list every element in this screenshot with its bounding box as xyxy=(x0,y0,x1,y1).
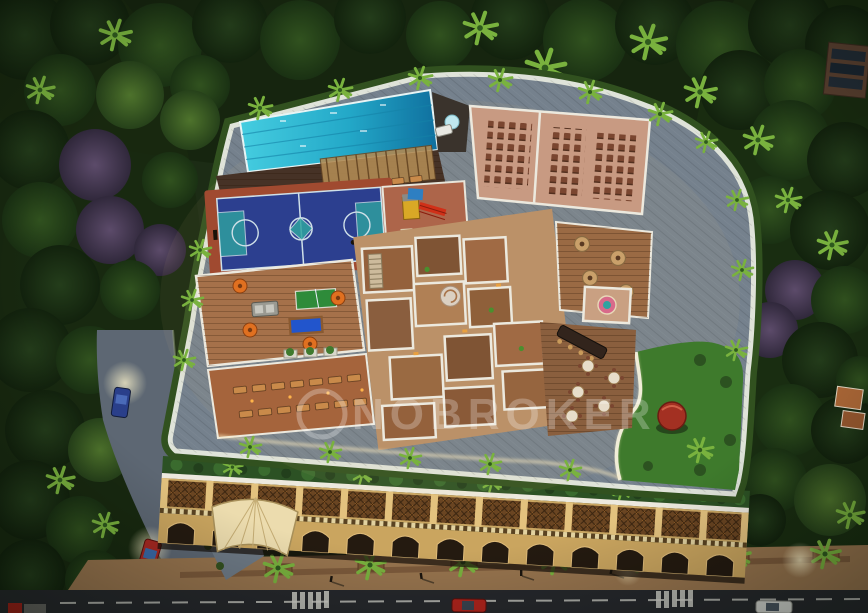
aerial-render: NOBROKER xyxy=(0,0,868,613)
watermark: NOBROKER xyxy=(299,390,657,439)
vignette xyxy=(0,0,868,613)
watermark-text: NOBROKER xyxy=(352,390,657,439)
